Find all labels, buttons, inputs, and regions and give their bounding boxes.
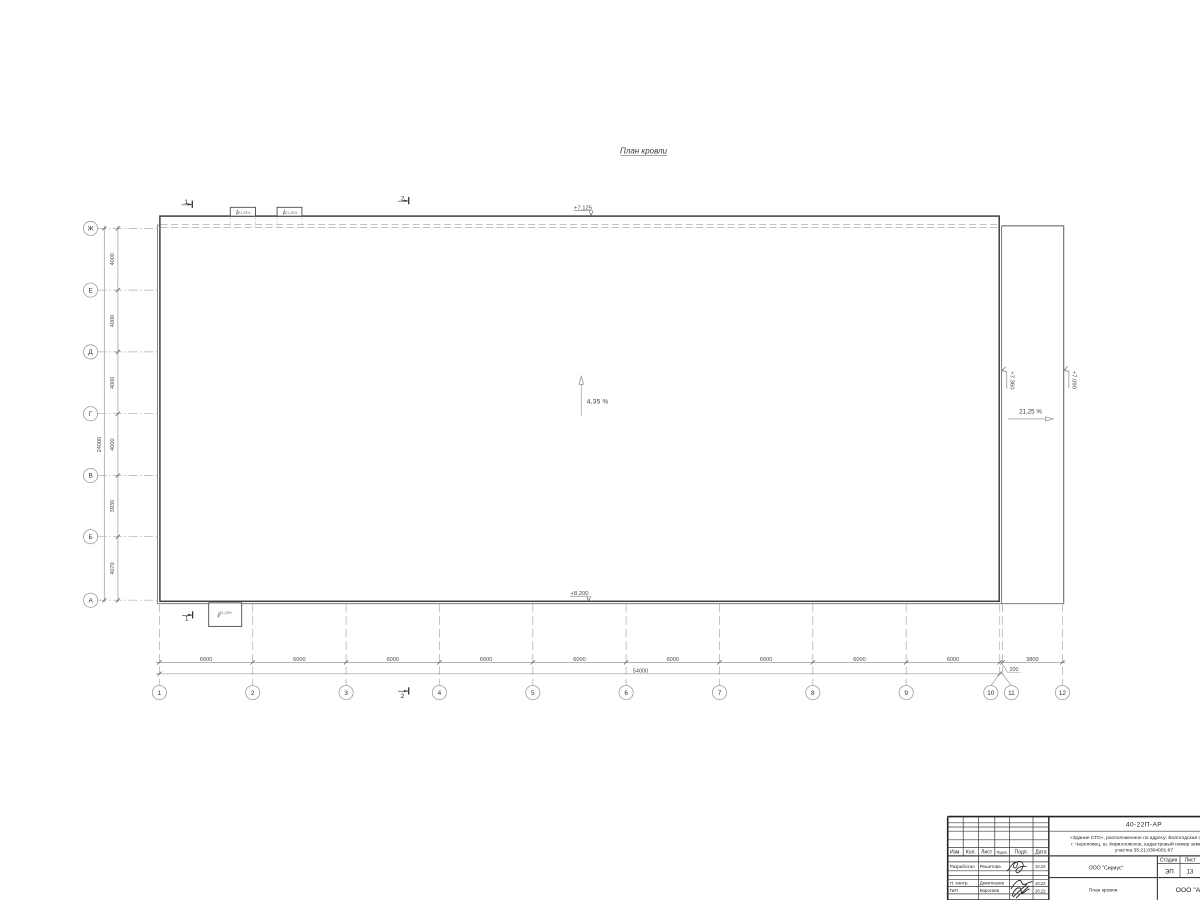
svg-text:Изм.: Изм.	[950, 850, 961, 856]
svg-text:ГиП: ГиП	[950, 888, 958, 893]
svg-text:11: 11	[1008, 690, 1015, 697]
svg-text:21,25%: 21,25%	[238, 211, 251, 215]
svg-text:12: 12	[1059, 690, 1067, 697]
svg-text:9: 9	[904, 690, 908, 697]
svg-text:Н. контр.: Н. контр.	[950, 881, 969, 886]
svg-text:Д: Д	[88, 349, 93, 356]
svg-text:Ж: Ж	[88, 226, 94, 233]
svg-text:4070: 4070	[110, 562, 116, 574]
svg-text:200: 200	[1010, 667, 1019, 673]
svg-text:7: 7	[718, 690, 722, 697]
svg-text:40-22П-АР: 40-22П-АР	[1126, 822, 1162, 829]
svg-text:4,35 %: 4,35 %	[587, 399, 609, 406]
svg-text:ООО "Сириус": ООО "Сириус"	[1089, 866, 1124, 872]
svg-text:Дата: Дата	[1035, 850, 1046, 856]
svg-text:10.22: 10.22	[1035, 864, 1046, 869]
svg-text:4000: 4000	[110, 377, 116, 389]
svg-text:Лист: Лист	[981, 850, 993, 856]
svg-text:2: 2	[401, 693, 405, 700]
svg-text:Разработал: Разработал	[950, 864, 975, 869]
svg-text:Кол.: Кол.	[966, 850, 976, 856]
svg-text:Б: Б	[88, 534, 92, 541]
svg-text:4000: 4000	[110, 438, 116, 450]
svg-text:5: 5	[531, 690, 535, 697]
svg-text:21,25 %: 21,25 %	[1019, 408, 1042, 415]
svg-text:+7.090: +7.090	[1070, 371, 1076, 390]
svg-text:10: 10	[987, 690, 995, 697]
svg-text:8: 8	[811, 690, 815, 697]
svg-text:3: 3	[344, 690, 348, 697]
svg-text:6000: 6000	[480, 657, 492, 663]
svg-text:ООО "Ар: ООО "Ар	[1176, 887, 1200, 894]
svg-text:Девятказов: Девятказов	[980, 881, 1005, 886]
svg-text:21,26%: 21,26%	[220, 611, 233, 615]
svg-text:Стадия: Стадия	[1160, 858, 1178, 864]
svg-text:6000: 6000	[947, 657, 959, 663]
svg-text:6: 6	[624, 690, 628, 697]
svg-text:В: В	[88, 473, 92, 480]
svg-text:«Здание СТО», расположенное по: «Здание СТО», расположенное по адресу: В…	[1070, 835, 1200, 841]
svg-text:10.22: 10.22	[1035, 888, 1046, 893]
svg-text:План кровли: План кровли	[1089, 888, 1118, 894]
svg-text:3800: 3800	[1026, 657, 1038, 663]
svg-text:Карогаев: Карогаев	[980, 888, 1000, 893]
svg-text:6000: 6000	[293, 657, 305, 663]
svg-text:Решетова: Решетова	[980, 864, 1002, 869]
svg-text:6000: 6000	[200, 657, 212, 663]
svg-text:№док.: №док.	[996, 849, 1008, 854]
svg-text:г. Череповец, ш. Кирилловское,: г. Череповец, ш. Кирилловское, кадастров…	[1071, 840, 1200, 847]
svg-text:6000: 6000	[667, 657, 679, 663]
svg-text:6000: 6000	[853, 657, 865, 663]
svg-text:24000: 24000	[97, 437, 103, 453]
svg-text:Лист: Лист	[1185, 858, 1197, 864]
svg-text:Подп.: Подп.	[1015, 850, 1029, 856]
svg-text:54000: 54000	[633, 668, 649, 674]
svg-text:План кровли: План кровли	[620, 147, 667, 156]
svg-text:4000: 4000	[110, 315, 116, 327]
svg-text:6000: 6000	[573, 657, 585, 663]
svg-text:21,25%: 21,25%	[285, 211, 298, 215]
svg-text:4000: 4000	[110, 253, 116, 265]
svg-text:1: 1	[185, 616, 189, 623]
svg-text:10.22: 10.22	[1035, 881, 1046, 886]
svg-text:4: 4	[438, 690, 442, 697]
svg-text:Е: Е	[88, 287, 92, 294]
svg-text:13: 13	[1187, 869, 1194, 876]
svg-text:1: 1	[158, 690, 162, 697]
svg-text:Г: Г	[89, 411, 93, 418]
svg-text:+7.360: +7.360	[1008, 371, 1014, 390]
svg-text:6000: 6000	[760, 657, 772, 663]
svg-text:6000: 6000	[387, 657, 399, 663]
svg-text:участка 35:21:0304001:67: участка 35:21:0304001:67	[1115, 848, 1173, 854]
svg-text:ЭП: ЭП	[1165, 869, 1174, 876]
svg-text:2: 2	[251, 690, 255, 697]
svg-text:3930: 3930	[110, 500, 116, 512]
svg-text:А: А	[88, 597, 93, 604]
